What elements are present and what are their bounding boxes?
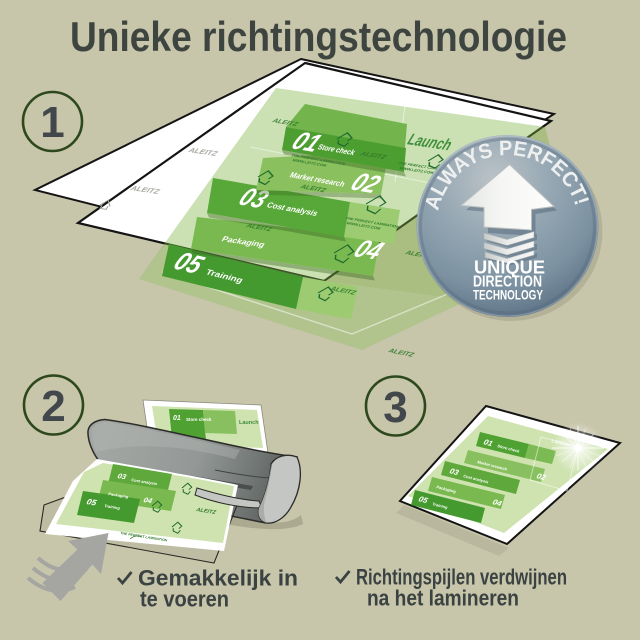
svg-text:3: 3	[383, 383, 407, 432]
svg-text:te voeren: te voeren	[140, 587, 229, 612]
svg-text:01: 01	[173, 415, 181, 422]
svg-text:Unieke richtingstechnologie: Unieke richtingstechnologie	[70, 13, 567, 60]
svg-text:2: 2	[41, 382, 65, 431]
svg-text:1: 1	[40, 98, 64, 147]
svg-text:TECHNOLOGY: TECHNOLOGY	[473, 288, 543, 303]
svg-text:Launch: Launch	[239, 420, 259, 426]
svg-text:na het lamineren: na het lamineren	[367, 586, 519, 611]
svg-text:Store check: Store check	[186, 417, 212, 422]
